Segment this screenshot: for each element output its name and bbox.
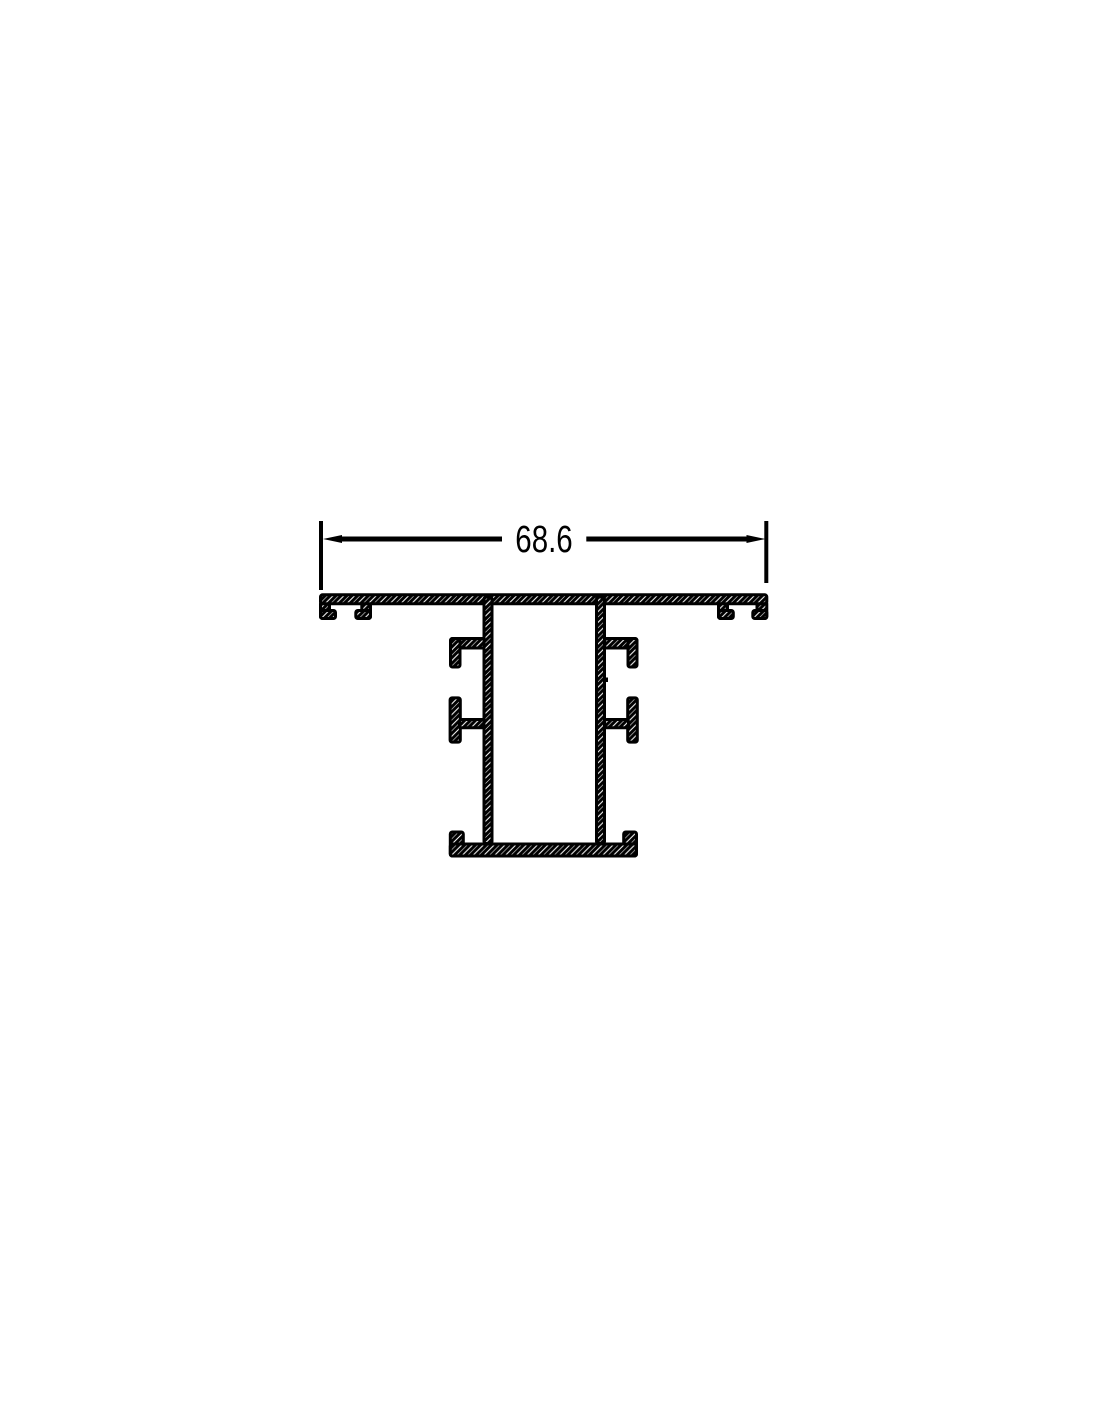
svg-text:68.6: 68.6 xyxy=(515,518,572,560)
